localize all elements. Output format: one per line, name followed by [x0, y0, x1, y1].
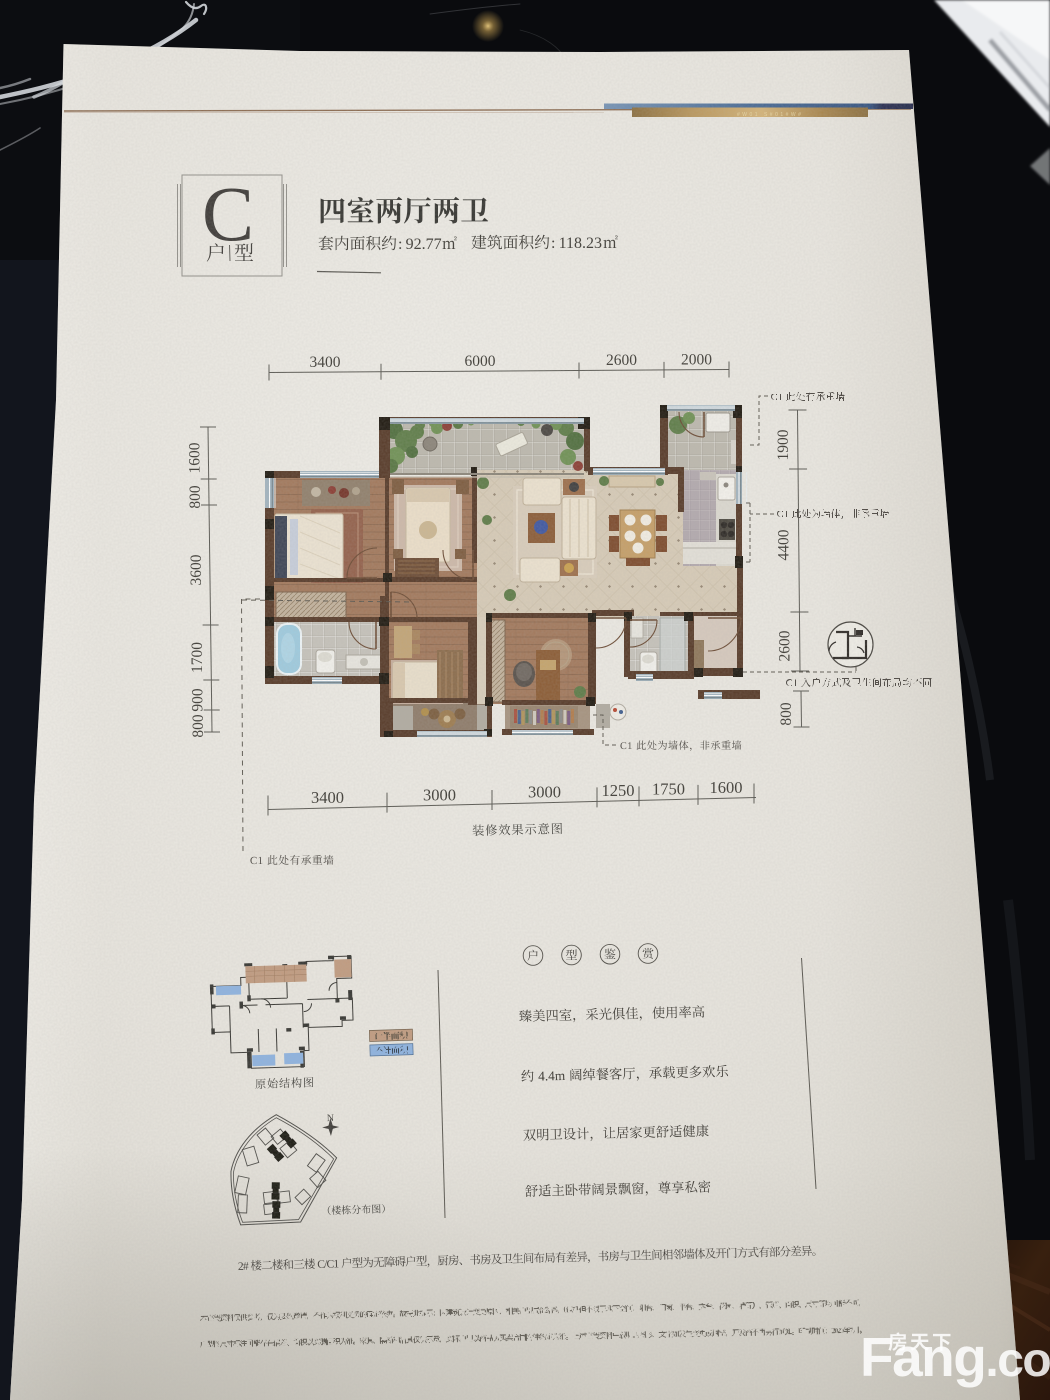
svg-text:Fang.com: Fang.com	[860, 1326, 1050, 1388]
